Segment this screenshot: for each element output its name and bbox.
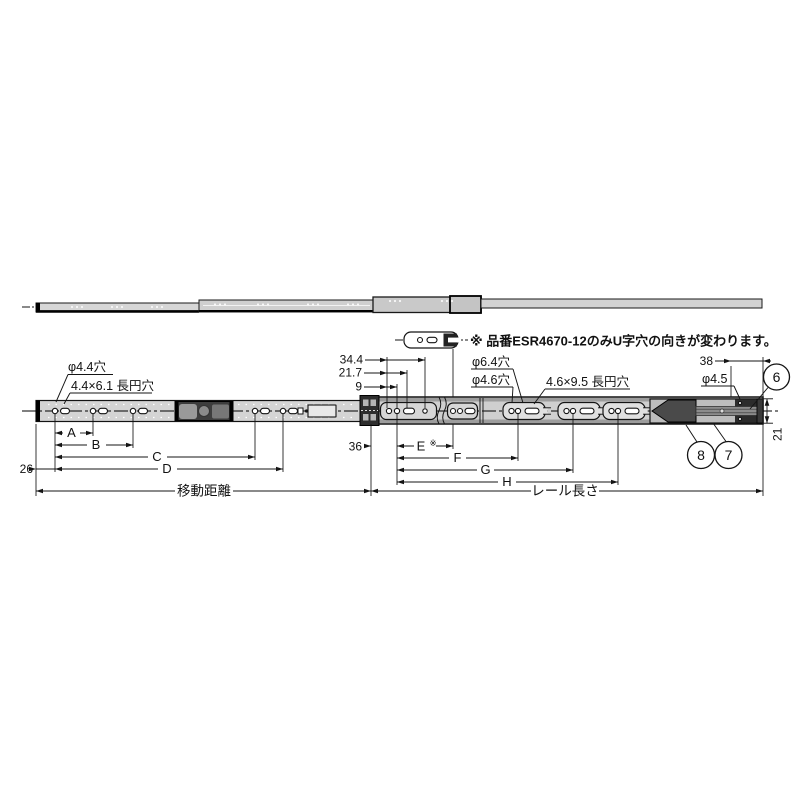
main-view-rail	[22, 396, 780, 426]
extension-lines	[36, 357, 763, 496]
svg-text:36: 36	[349, 440, 363, 454]
balloon-8: 8	[686, 425, 715, 469]
dim-a: A	[55, 425, 93, 440]
svg-text:F: F	[454, 450, 462, 465]
svg-text:φ4.5: φ4.5	[702, 372, 728, 386]
svg-text:レール長さ: レール長さ	[531, 484, 599, 499]
svg-text:6: 6	[773, 369, 781, 385]
front-bracket	[381, 403, 437, 420]
svg-text:34.4: 34.4	[340, 353, 364, 367]
top-view-extended-slide	[22, 296, 762, 313]
dim-34-4: 34.4	[340, 353, 425, 367]
dim-36: 36	[349, 440, 371, 454]
svg-text:φ6.4穴: φ6.4穴	[472, 354, 510, 369]
dim-21: 21	[762, 399, 785, 441]
disconnect-lever-mechanism	[650, 399, 763, 423]
balloon-7: 7	[713, 423, 742, 469]
callout-hole-4-5: φ4.5	[701, 372, 740, 399]
technical-drawing-canvas: ※ 品番ESR4670-12のみU字穴の向きが変わります。	[0, 0, 800, 800]
detail-inset-u-hole	[395, 332, 468, 449]
svg-text:B: B	[92, 437, 101, 452]
dim-c: C	[55, 449, 255, 464]
dim-g: G	[397, 462, 573, 477]
dim-38: 38	[700, 354, 771, 368]
svg-text:φ4.4穴: φ4.4穴	[68, 359, 106, 374]
dimensions: 34.4 21.7 9 38 21	[20, 353, 785, 499]
note-text: ※ 品番ESR4670-12のみU字穴の向きが変わります。	[470, 334, 777, 349]
u-cutout-3	[603, 403, 650, 420]
svg-text:D: D	[162, 461, 171, 476]
u-cutout-1	[503, 403, 551, 420]
svg-text:4.6×9.5 長円穴: 4.6×9.5 長円穴	[546, 374, 630, 389]
balloon-6: 6	[750, 364, 790, 409]
dim-rail-length: レール長さ	[371, 484, 763, 499]
slide-rail-drawing: ※ 品番ESR4670-12のみU字穴の向きが変わります。	[0, 0, 800, 800]
svg-text:H: H	[502, 474, 511, 489]
svg-text:移動距離: 移動距離	[177, 484, 231, 499]
dim-26: 26	[20, 462, 55, 476]
svg-text:A: A	[67, 425, 76, 440]
dim-d: D	[55, 461, 283, 476]
note: ※ 品番ESR4670-12のみU字穴の向きが変わります。	[470, 334, 777, 349]
dim-travel-distance: 移動距離	[36, 484, 371, 499]
svg-text:38: 38	[700, 354, 714, 368]
junction-bracket	[360, 396, 379, 426]
svg-text:7: 7	[725, 447, 733, 463]
dim-f: F	[397, 450, 518, 465]
dim-e-reference-mark: ※	[430, 438, 437, 448]
ball-retainer-mechanism	[175, 402, 233, 421]
dim-21-7: 21.7	[339, 366, 407, 380]
label-window	[308, 405, 336, 417]
svg-text:9: 9	[355, 380, 362, 394]
svg-text:C: C	[152, 449, 161, 464]
svg-text:21: 21	[771, 427, 785, 441]
u-cutout-2	[558, 403, 606, 420]
svg-text:G: G	[480, 462, 490, 477]
svg-text:4.4×6.1 長円穴: 4.4×6.1 長円穴	[71, 378, 155, 393]
svg-text:8: 8	[697, 447, 705, 463]
dim-e: E ※	[397, 438, 453, 454]
svg-text:E: E	[417, 439, 426, 454]
svg-text:φ4.6穴: φ4.6穴	[472, 372, 510, 387]
dim-9: 9	[355, 380, 397, 394]
svg-text:21.7: 21.7	[339, 366, 363, 380]
